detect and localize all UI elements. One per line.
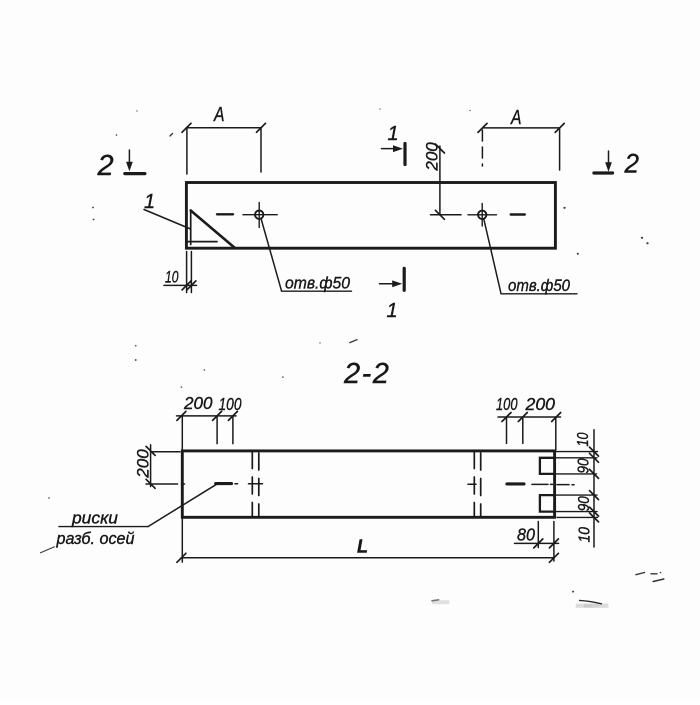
svg-text:А: А [213, 104, 224, 126]
svg-text:100: 100 [496, 394, 518, 414]
svg-text:10: 10 [577, 527, 594, 543]
svg-text:1: 1 [388, 123, 399, 145]
svg-text:А: А [510, 107, 521, 129]
svg-text:10: 10 [165, 268, 179, 287]
svg-text:200: 200 [524, 394, 555, 414]
svg-text:разб. осей: разб. осей [56, 530, 135, 548]
svg-text:2: 2 [624, 149, 639, 179]
svg-text:отв.ф50: отв.ф50 [285, 274, 351, 293]
svg-text:2: 2 [97, 150, 114, 182]
svg-text:90: 90 [576, 458, 593, 473]
svg-text:200: 200 [183, 393, 213, 413]
svg-text:200: 200 [134, 449, 153, 479]
svg-text:200: 200 [423, 142, 442, 172]
svg-text:L: L [357, 537, 368, 557]
svg-text:90: 90 [576, 496, 593, 511]
svg-text:1: 1 [144, 191, 155, 213]
svg-text:10: 10 [575, 432, 592, 446]
svg-text:1: 1 [387, 300, 398, 322]
svg-text:риски: риски [71, 510, 118, 528]
svg-text:отв.ф50: отв.ф50 [508, 276, 570, 295]
svg-text:80: 80 [517, 525, 535, 545]
svg-text:100: 100 [219, 394, 242, 414]
svg-text:2-2: 2-2 [343, 358, 390, 390]
